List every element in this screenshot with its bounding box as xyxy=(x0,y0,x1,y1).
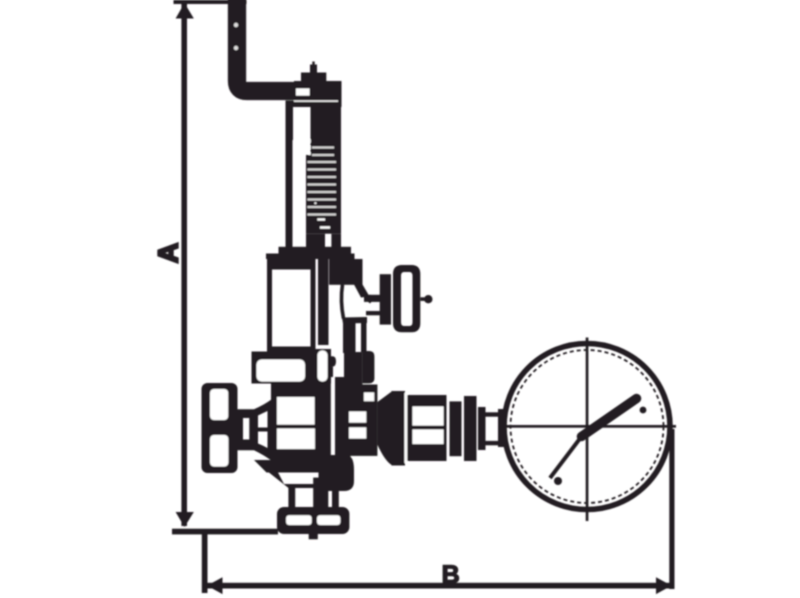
svg-text:B: B xyxy=(442,561,460,589)
svg-text:A: A xyxy=(153,243,184,263)
